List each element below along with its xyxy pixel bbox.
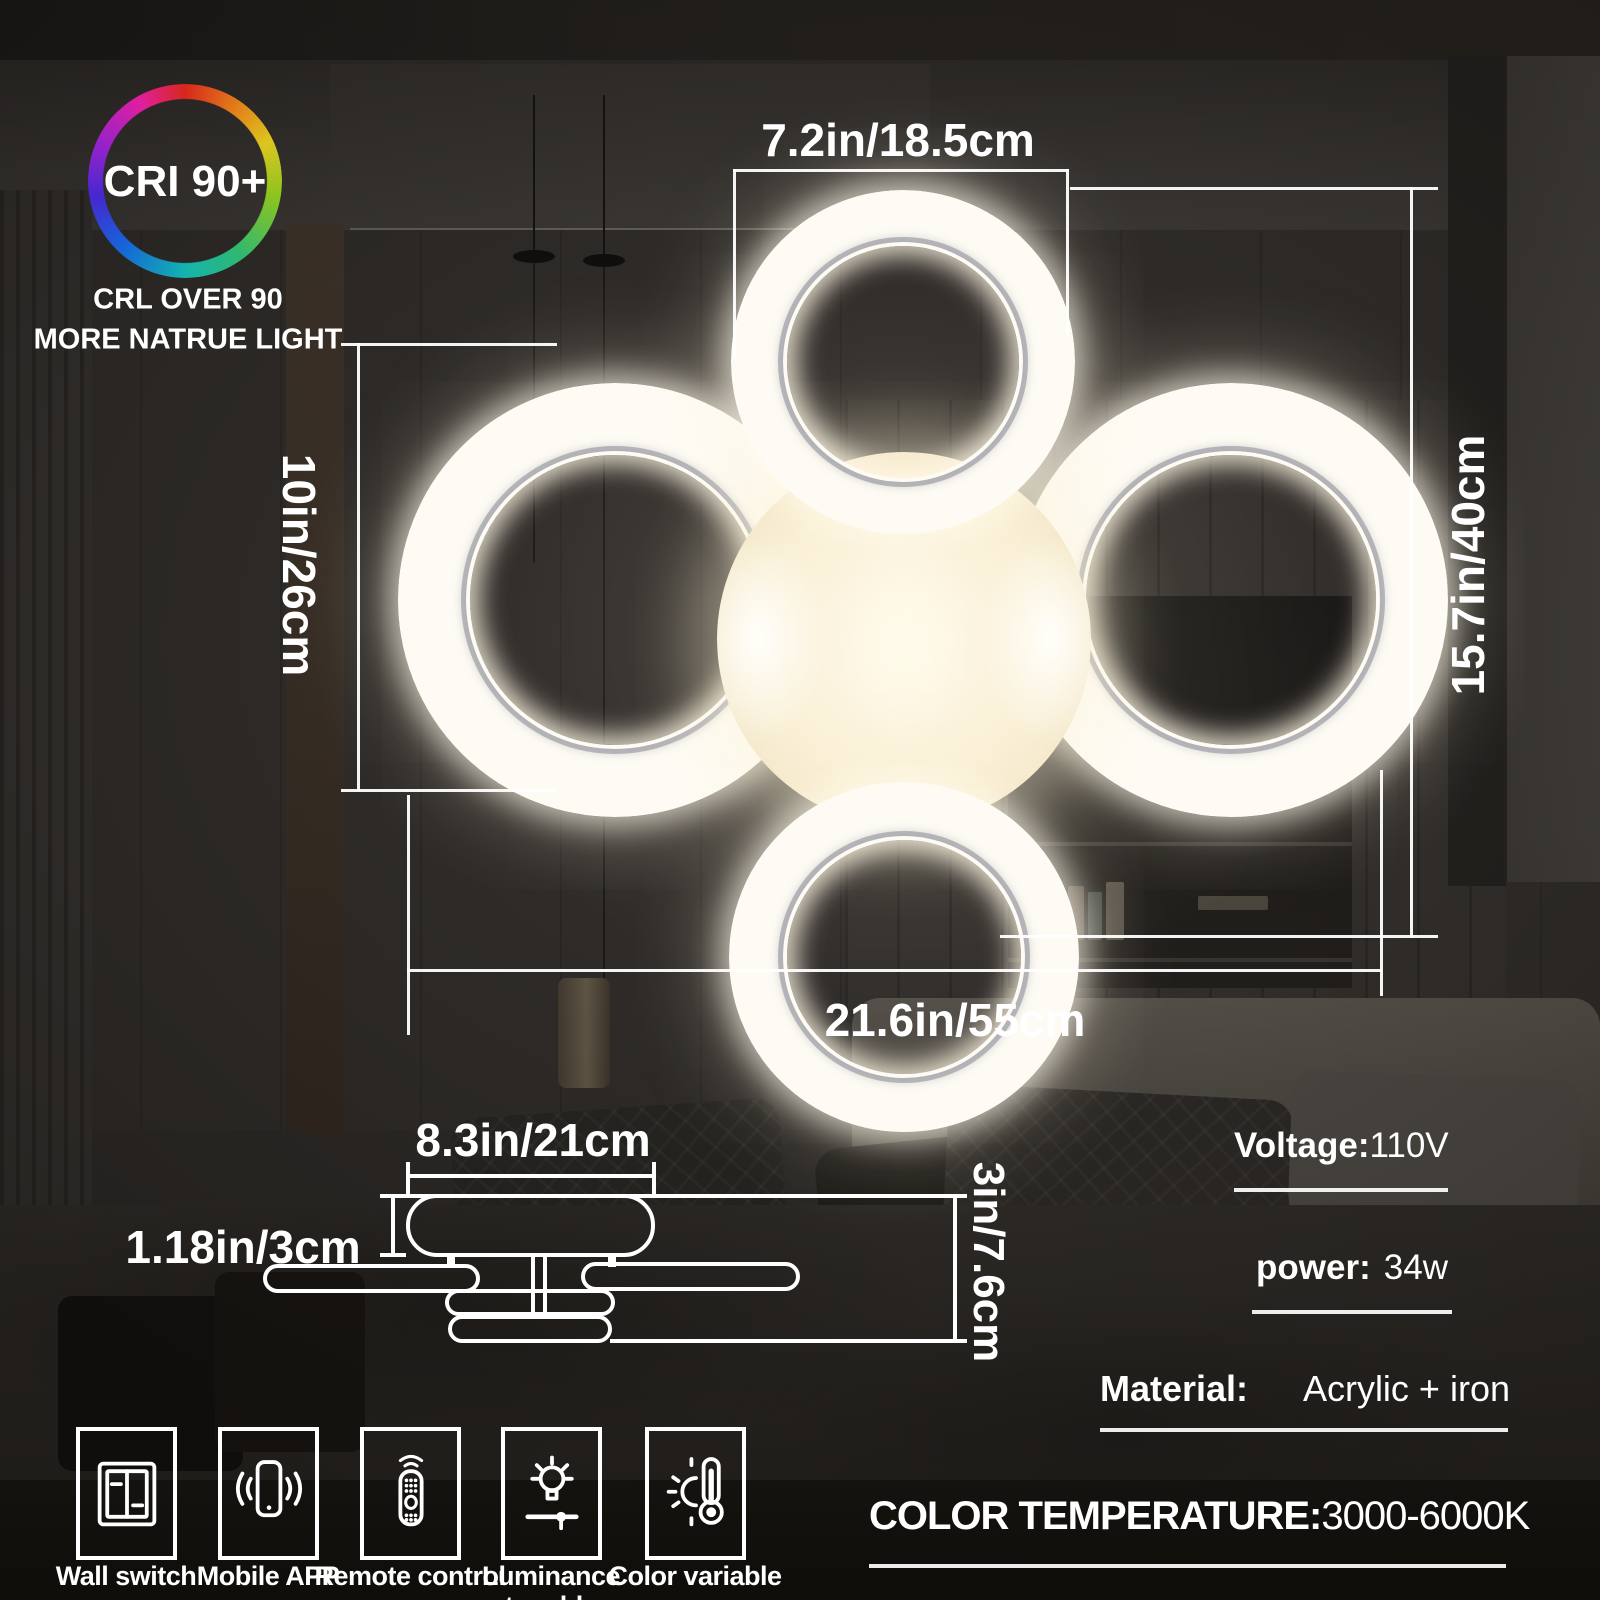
power-value: 34w (1384, 1248, 1448, 1288)
dim-label-base-width: 8.3in/21cm (415, 1113, 650, 1167)
dim-tick (733, 169, 736, 359)
luminance-tunable-feature (501, 1427, 602, 1560)
dim-label-left-height: 10in/26cm (272, 454, 326, 676)
wall-switch-icon (89, 1441, 165, 1547)
led-ring-top (731, 190, 1075, 534)
cri-badge-title: CRI 90+ (104, 157, 267, 207)
power-label: power: (1256, 1248, 1371, 1288)
divider (1252, 1310, 1452, 1314)
dim-line-top (733, 169, 1069, 172)
color-variable-feature (645, 1427, 746, 1560)
dim-label-base-thickness: 1.18in/3cm (125, 1220, 360, 1274)
dim-label-top-ring: 7.2in/18.5cm (761, 113, 1035, 167)
led-ring-bottom (729, 782, 1079, 1132)
remote-control-feature (360, 1427, 461, 1560)
dim-tick (341, 789, 557, 792)
color-temperature-label: COLOR TEMPERATURE: (869, 1494, 1321, 1539)
luminance-tunable-icon (514, 1441, 590, 1547)
remote-control-icon (373, 1441, 449, 1547)
divider (869, 1564, 1506, 1568)
dim-ext-line (407, 795, 410, 1035)
material-value: Acrylic + iron (1303, 1368, 1510, 1410)
dim-ext-line (1070, 187, 1438, 190)
voltage-value: 110V (1369, 1126, 1448, 1166)
dim-label-right-height: 15.7in/40cm (1441, 435, 1495, 696)
dim-ext-line (1000, 935, 1438, 938)
divider (1100, 1428, 1508, 1432)
spec-material: Material: Acrylic + iron (1100, 1368, 1510, 1410)
mobile-app-icon (231, 1441, 307, 1547)
spec-power: power: 34w (1256, 1248, 1448, 1288)
feature-label: Color variable (585, 1562, 805, 1592)
dim-tick (341, 343, 557, 346)
divider (1234, 1188, 1448, 1192)
color-variable-icon (658, 1441, 734, 1547)
spec-voltage: Voltage: 110V (1234, 1126, 1448, 1166)
product-spec-image: 7.2in/18.5cm 10in/26cm 15.7in/40cm 21.6i… (0, 0, 1600, 1600)
cri-badge-line2: MORE NATRUE LIGHT (34, 324, 343, 357)
spec-color-temperature: COLOR TEMPERATURE: 3000-6000K (869, 1494, 1509, 1539)
voltage-label: Voltage: (1234, 1126, 1369, 1166)
cri-badge-line1: CRL OVER 90 (93, 284, 283, 317)
dim-label-side-height: 3in/7.6cm (963, 1162, 1013, 1363)
dim-ext-line (1380, 770, 1383, 996)
dim-line-bottom (407, 969, 1382, 972)
color-temperature-value: 3000-6000K (1321, 1494, 1529, 1539)
dim-line-left (357, 343, 360, 791)
dim-line-right (1410, 187, 1413, 937)
dim-tick (1066, 169, 1069, 337)
material-label: Material: (1100, 1368, 1248, 1410)
dim-label-overall-width: 21.6in/55cm (825, 993, 1086, 1047)
wall-switch-feature (76, 1427, 177, 1560)
mobile-app-feature (218, 1427, 319, 1560)
